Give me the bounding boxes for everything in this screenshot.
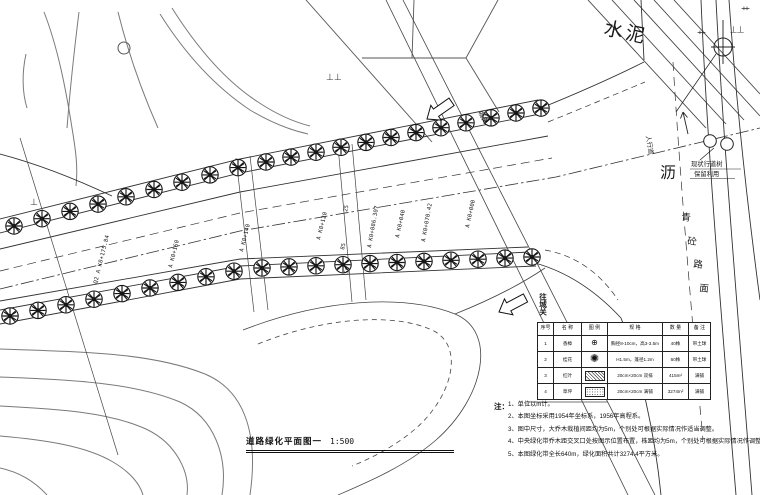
text-labels: 水泥 沥 青 砼 路 面 人行道 ⊥⊥ ⊥ 艹 丄丄 艹 现状行道树 保留利用 … (30, 6, 750, 317)
legend-qty: 415m² (663, 368, 689, 384)
drawing-canvas: 水泥 沥 青 砼 路 面 人行道 ⊥⊥ ⊥ 艹 丄丄 艹 现状行道树 保留利用 … (0, 0, 760, 495)
street-tree-icon (281, 259, 297, 275)
legend-mark: 艹 (697, 30, 706, 40)
existing-tree-icon (704, 135, 717, 148)
legend-header: 规 格 (608, 323, 663, 336)
street-tree-icon (254, 260, 270, 276)
asphalt-char: 路 (693, 258, 704, 271)
existing-tree-note-line2: 保留利用 (694, 169, 719, 178)
chainage-label: A K0+086.307 (367, 205, 380, 248)
direction-label-bottom: 往城关 (538, 292, 547, 317)
note-item: 1、单位以m计。 (508, 399, 760, 411)
legend-row: 4 草坪 20cm×20cm 满铺 3274m² 满铺 (538, 384, 711, 400)
street-tree-icon (62, 203, 78, 219)
street-tree-icon (308, 258, 324, 274)
asphalt-char: 面 (699, 283, 710, 295)
legend-no: 3 (538, 368, 554, 384)
legend-mark: 丄丄 (730, 26, 744, 34)
drawing-scale: 1:500 (330, 437, 354, 446)
general-notes: 注： 1、单位以m计。 2、本图坐标采用1954年坐标系，1956年高程系。 3… (494, 399, 760, 461)
legend-name: 草坪 (554, 384, 582, 400)
existing-tree-icon (721, 138, 734, 151)
title-underline (246, 450, 454, 453)
note-item: 2、本图坐标采用1954年坐标系，1956年高程系。 (508, 411, 760, 423)
road-centerline (0, 128, 760, 289)
legend-spec: 20cm×20cm 双排 (608, 368, 663, 384)
legend-spec: H1.5m，蓬径1.2m (608, 352, 663, 368)
legend-qty: 40株 (663, 336, 689, 352)
street-tree-icon (146, 181, 162, 197)
note-item: 4、中央绿化带乔木距交叉口处按图示位置布置，株距均为5m，个别处可根据实际情况作… (508, 436, 760, 448)
legend-remark: 带土球 (689, 336, 711, 352)
legend-mark: ⊥ (30, 197, 38, 207)
dimension-number: 25 (343, 205, 350, 213)
street-tree-icon (508, 105, 524, 121)
legend-header-row: 序号 名 称 图 例 规 格 数 量 备 注 (538, 323, 711, 336)
dimension-number: 56 (344, 267, 351, 275)
chainage-label: A K0+040 (395, 209, 407, 238)
legend-header: 图 例 (582, 323, 608, 336)
legend-no: 2 (538, 352, 554, 368)
street-tree-icon (114, 285, 130, 301)
legend-qty: 60株 (663, 352, 689, 368)
street-tree-icon (90, 196, 106, 212)
legend-spec: 胸径8-10cm，高3-3.5m (608, 336, 663, 352)
traffic-arrow-icon (681, 112, 689, 134)
street-tree-icon (170, 274, 186, 290)
flower-tree-symbol-icon: ✺ (590, 353, 599, 365)
legend-row: 3 红叶 20cm×20cm 双排 415m² 满铺 (538, 368, 711, 384)
asphalt-road-label: 沥 (660, 164, 676, 182)
chainage-label: A K0+160 (168, 239, 181, 268)
street-tree-icon (333, 139, 349, 155)
street-tree-icon (174, 174, 190, 190)
street-tree-icon (226, 263, 242, 279)
legend-header: 名 称 (554, 323, 582, 336)
street-tree-icon (258, 154, 274, 170)
dots-symbol-icon (585, 387, 605, 397)
plant-legend-table: 序号 名 称 图 例 规 格 数 量 备 注 1 香樟 ⊕ 胸径8-10cm，高… (537, 322, 711, 400)
tree-symbol-icon: ⊕ (591, 338, 598, 347)
note-item: 3、图中尺寸，大乔木栽植间距均为5m，个别处可根据实际情况作适当调整。 (508, 424, 760, 436)
sidewalk-label: 人行道 (644, 135, 656, 156)
street-tree-icon (443, 252, 459, 268)
existing-tree-note-line1: 现状行道树 (691, 159, 723, 168)
legend-remark: 带土球 (689, 352, 711, 368)
legend-no: 4 (538, 384, 554, 400)
street-tree-icon (283, 149, 299, 165)
legend-spec: 20cm×20cm 满铺 (608, 384, 663, 400)
street-tree-icon (2, 308, 18, 324)
main-road-lines (0, 62, 760, 324)
chainage-label: A K0+000 (465, 199, 477, 228)
street-tree-icon (58, 297, 74, 313)
street-tree-icon (118, 189, 134, 205)
street-tree-icon (383, 129, 399, 145)
hatch-symbol-icon (585, 371, 605, 381)
dimension-number: 85 (340, 243, 347, 251)
contour-lines-bottomleft (0, 349, 253, 495)
street-tree-icon (358, 134, 374, 150)
street-tree-icon (30, 302, 46, 318)
legend-mark: ⊥⊥ (326, 72, 342, 82)
legend-name: 红叶 (554, 368, 582, 384)
existing-trees-group (676, 20, 741, 179)
street-tree-icon (416, 253, 432, 269)
street-tree-icon (458, 115, 474, 131)
chainage-label: A K0+120 (316, 211, 329, 240)
legend-header: 数 量 (663, 323, 689, 336)
chainage-label: A K0+070.42 (421, 203, 434, 243)
street-tree-icon (202, 167, 218, 183)
street-tree-icon (198, 269, 214, 285)
chainage-label: A K0+140 (239, 223, 252, 252)
legend-remark: 满铺 (689, 368, 711, 384)
legend-row: 2 桂花 ✺ H1.5m，蓬径1.2m 60株 带土球 (538, 352, 711, 368)
legend-header: 序号 (538, 323, 554, 336)
street-tree-icon (34, 211, 50, 227)
legend-row: 1 香樟 ⊕ 胸径8-10cm，高3-3.5m 40株 带土球 (538, 336, 711, 352)
street-tree-icon (524, 249, 540, 265)
street-tree-icon (433, 120, 449, 136)
notes-heading: 注： (494, 401, 509, 412)
chainage-label: Q2 A K0+175.84 (93, 234, 111, 284)
legend-header: 备 注 (689, 323, 711, 336)
drawing-title-block: 道路绿化平面图一1:500 (246, 431, 454, 453)
legend-no: 1 (538, 336, 554, 352)
street-tree-icon (6, 218, 22, 234)
legend-remark: 满铺 (689, 384, 711, 400)
hollow-arrow-icon (495, 290, 530, 320)
street-tree-icon (389, 254, 405, 270)
street-tree-icon (497, 250, 513, 266)
asphalt-char: 青 (681, 211, 692, 224)
street-tree-icon (142, 280, 158, 296)
drawing-title: 道路绿化平面图一 (246, 435, 322, 447)
street-tree-icon (470, 251, 486, 267)
note-item: 5、本图绿化带全长640m，绿化面积共计3274.4平方米。 (508, 449, 760, 461)
legend-name: 香樟 (554, 336, 582, 352)
legend-qty: 3274m² (663, 384, 689, 400)
street-tree-icon (230, 159, 246, 175)
street-tree-icon (408, 124, 424, 140)
street-tree-icon (362, 255, 378, 271)
street-tree-icon (533, 100, 549, 116)
legend-name: 桂花 (554, 352, 582, 368)
asphalt-char: 砼 (687, 235, 698, 248)
street-tree-icon (308, 144, 324, 160)
street-tree-icon (86, 291, 102, 307)
legend-mark: 艹 (741, 6, 750, 16)
